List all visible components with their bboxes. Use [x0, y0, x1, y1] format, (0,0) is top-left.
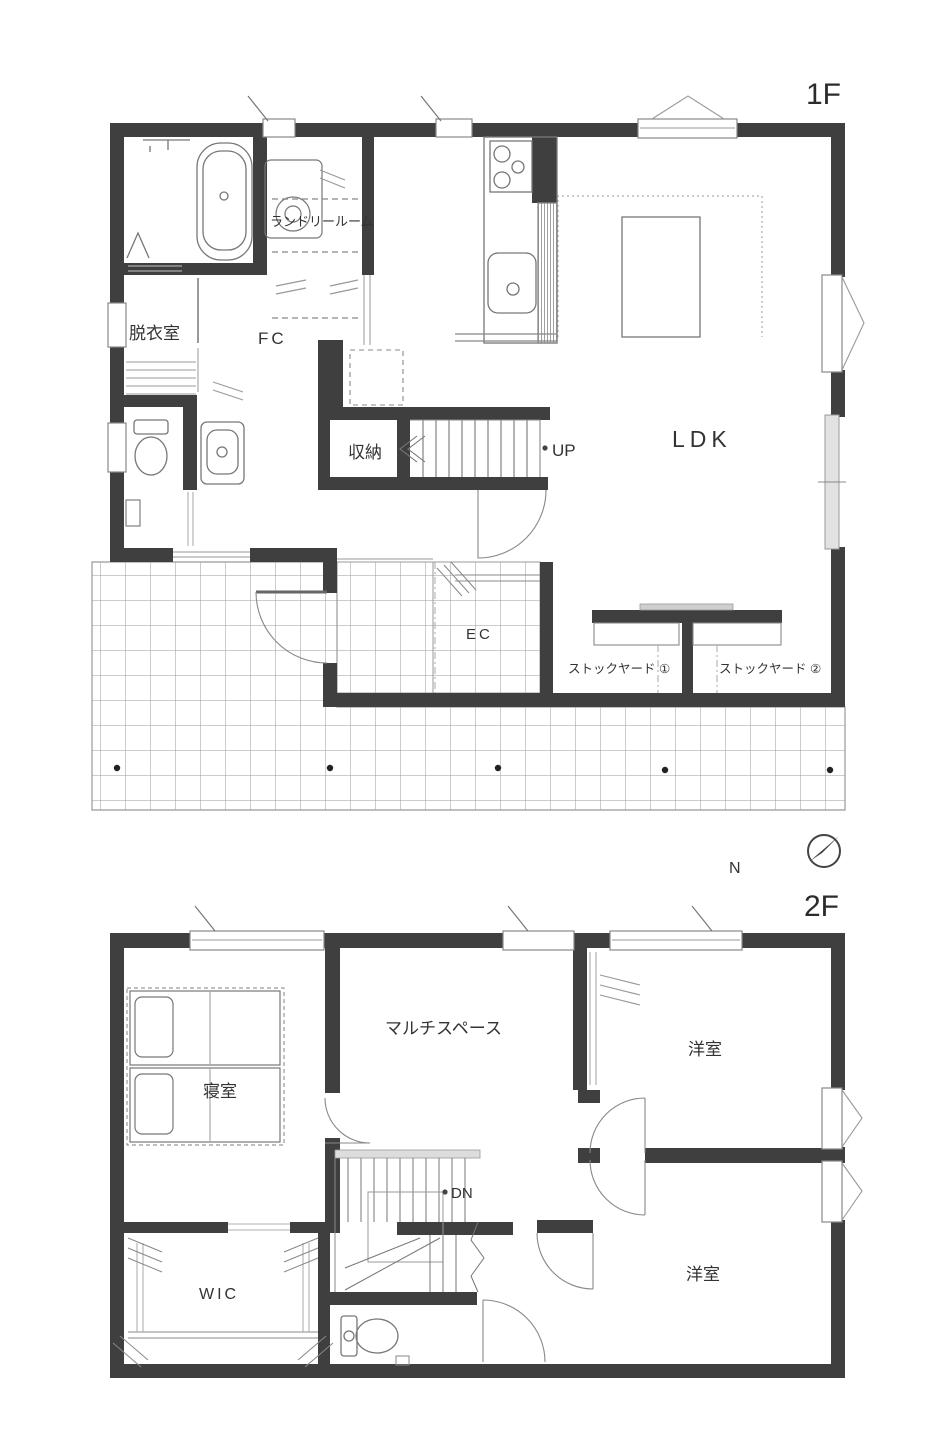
stairs-up-label: UP: [552, 441, 576, 460]
awning-window-mark: [652, 96, 724, 119]
toilet-hand-sink: [126, 500, 140, 526]
stairs-2f: [335, 1150, 484, 1292]
door-arc-hall: [537, 1233, 593, 1289]
floor-label-2f: 2F: [804, 890, 839, 923]
shower-fixture: [143, 140, 190, 152]
window-top-1: [263, 119, 295, 137]
floor-plan-drawing: 1F ランドリールーム 脱衣室 FC 収納 UP LDK EC ストックヤード …: [0, 0, 943, 1456]
window-2f-top-2: [503, 931, 574, 950]
room-label-dressing: 脱衣室: [129, 324, 180, 343]
laundry-rail: [364, 275, 370, 345]
window-left-2: [108, 423, 126, 472]
washroom-sliding-door: [173, 552, 250, 557]
window-top-2: [436, 119, 472, 137]
pillow-1: [135, 997, 173, 1057]
ldk-furniture: [558, 196, 762, 337]
room-label-multi-space: マルチスペース: [385, 1019, 502, 1038]
window-2f-right-2: [822, 1161, 842, 1222]
room-label-fc: FC: [258, 329, 287, 348]
floor-label-1f: 1F: [806, 78, 841, 111]
room-label-storage: 収納: [348, 443, 382, 462]
western-room-doors: [537, 952, 645, 1289]
stair-treads: [423, 420, 527, 477]
window-2f-right-1: [822, 1088, 842, 1149]
compass-north-label: N: [729, 860, 741, 877]
terrace-tile-area: [92, 562, 845, 810]
fc-cabinet: [350, 350, 403, 405]
window-left-1: [108, 303, 126, 347]
stairs-down-label: DN: [451, 1185, 473, 1202]
wic-hanger-rail: [128, 1332, 318, 1338]
pillow-2: [135, 1074, 173, 1134]
room-label-ec: EC: [466, 626, 493, 643]
hall-door-arc: [478, 490, 546, 558]
room-label-wic: WIC: [199, 1286, 239, 1303]
room-label-bedroom: 寝室: [203, 1081, 237, 1101]
window-right-casement: [822, 275, 842, 372]
toilet-bowl: [135, 437, 167, 475]
room-label-stockyard1: ストックヤード ①: [568, 662, 670, 676]
floor-plan-canvas: 1F ランドリールーム 脱衣室 FC 収納 UP LDK EC ストックヤード …: [0, 0, 943, 1456]
bathroom: [127, 140, 252, 271]
counter-edge: [538, 203, 557, 343]
compass-needle: [810, 836, 839, 861]
bedroom-door-arc: [325, 1098, 370, 1143]
dressing-cabinet: [126, 362, 196, 394]
windows-2f: [190, 906, 862, 1222]
toilet-door-arc: [483, 1300, 545, 1362]
door-arc-yoshitsu2: [590, 1160, 645, 1215]
room-label-stockyard2: ストックヤード ②: [719, 662, 821, 676]
wic-opening: [228, 1224, 290, 1230]
toilet-bowl-2f: [356, 1319, 398, 1353]
room-label-western-room-2: 洋室: [686, 1265, 720, 1284]
stair-rail: [335, 1150, 480, 1158]
floor-2f: 2F 寝室 マルチスペース 洋室 洋室 WIC DN: [110, 890, 862, 1378]
toilet-room-2f: [341, 1300, 545, 1365]
pocket-door: [188, 492, 193, 546]
closet-hanger-marks: [600, 975, 640, 1005]
genkan-tile: [337, 562, 433, 693]
room-label-ldk: LDK: [672, 426, 732, 452]
bedroom-beds: [127, 988, 284, 1145]
island-table: [622, 217, 700, 337]
stockyard2-shelf: [693, 623, 781, 645]
room-label-western-room-1: 洋室: [688, 1040, 722, 1059]
bed-1: [130, 991, 280, 1065]
laundry-room-fixtures: [265, 160, 370, 345]
door-arc-yoshitsu1: [590, 1098, 645, 1153]
stockyard1-shelf: [594, 623, 679, 645]
compass: N: [729, 835, 840, 877]
toilet-tank: [134, 420, 168, 434]
dn-marker-dot: [442, 1189, 447, 1194]
up-marker-dot: [542, 445, 547, 450]
bath-folding-door: [127, 233, 149, 258]
floor-1f: 1F ランドリールーム 脱衣室 FC 収納 UP LDK EC ストックヤード …: [92, 78, 864, 810]
bed-2: [130, 1068, 280, 1142]
room-label-laundry: ランドリールーム: [270, 214, 374, 229]
closet-line: [590, 952, 596, 1085]
stockyard-rail: [640, 604, 733, 610]
